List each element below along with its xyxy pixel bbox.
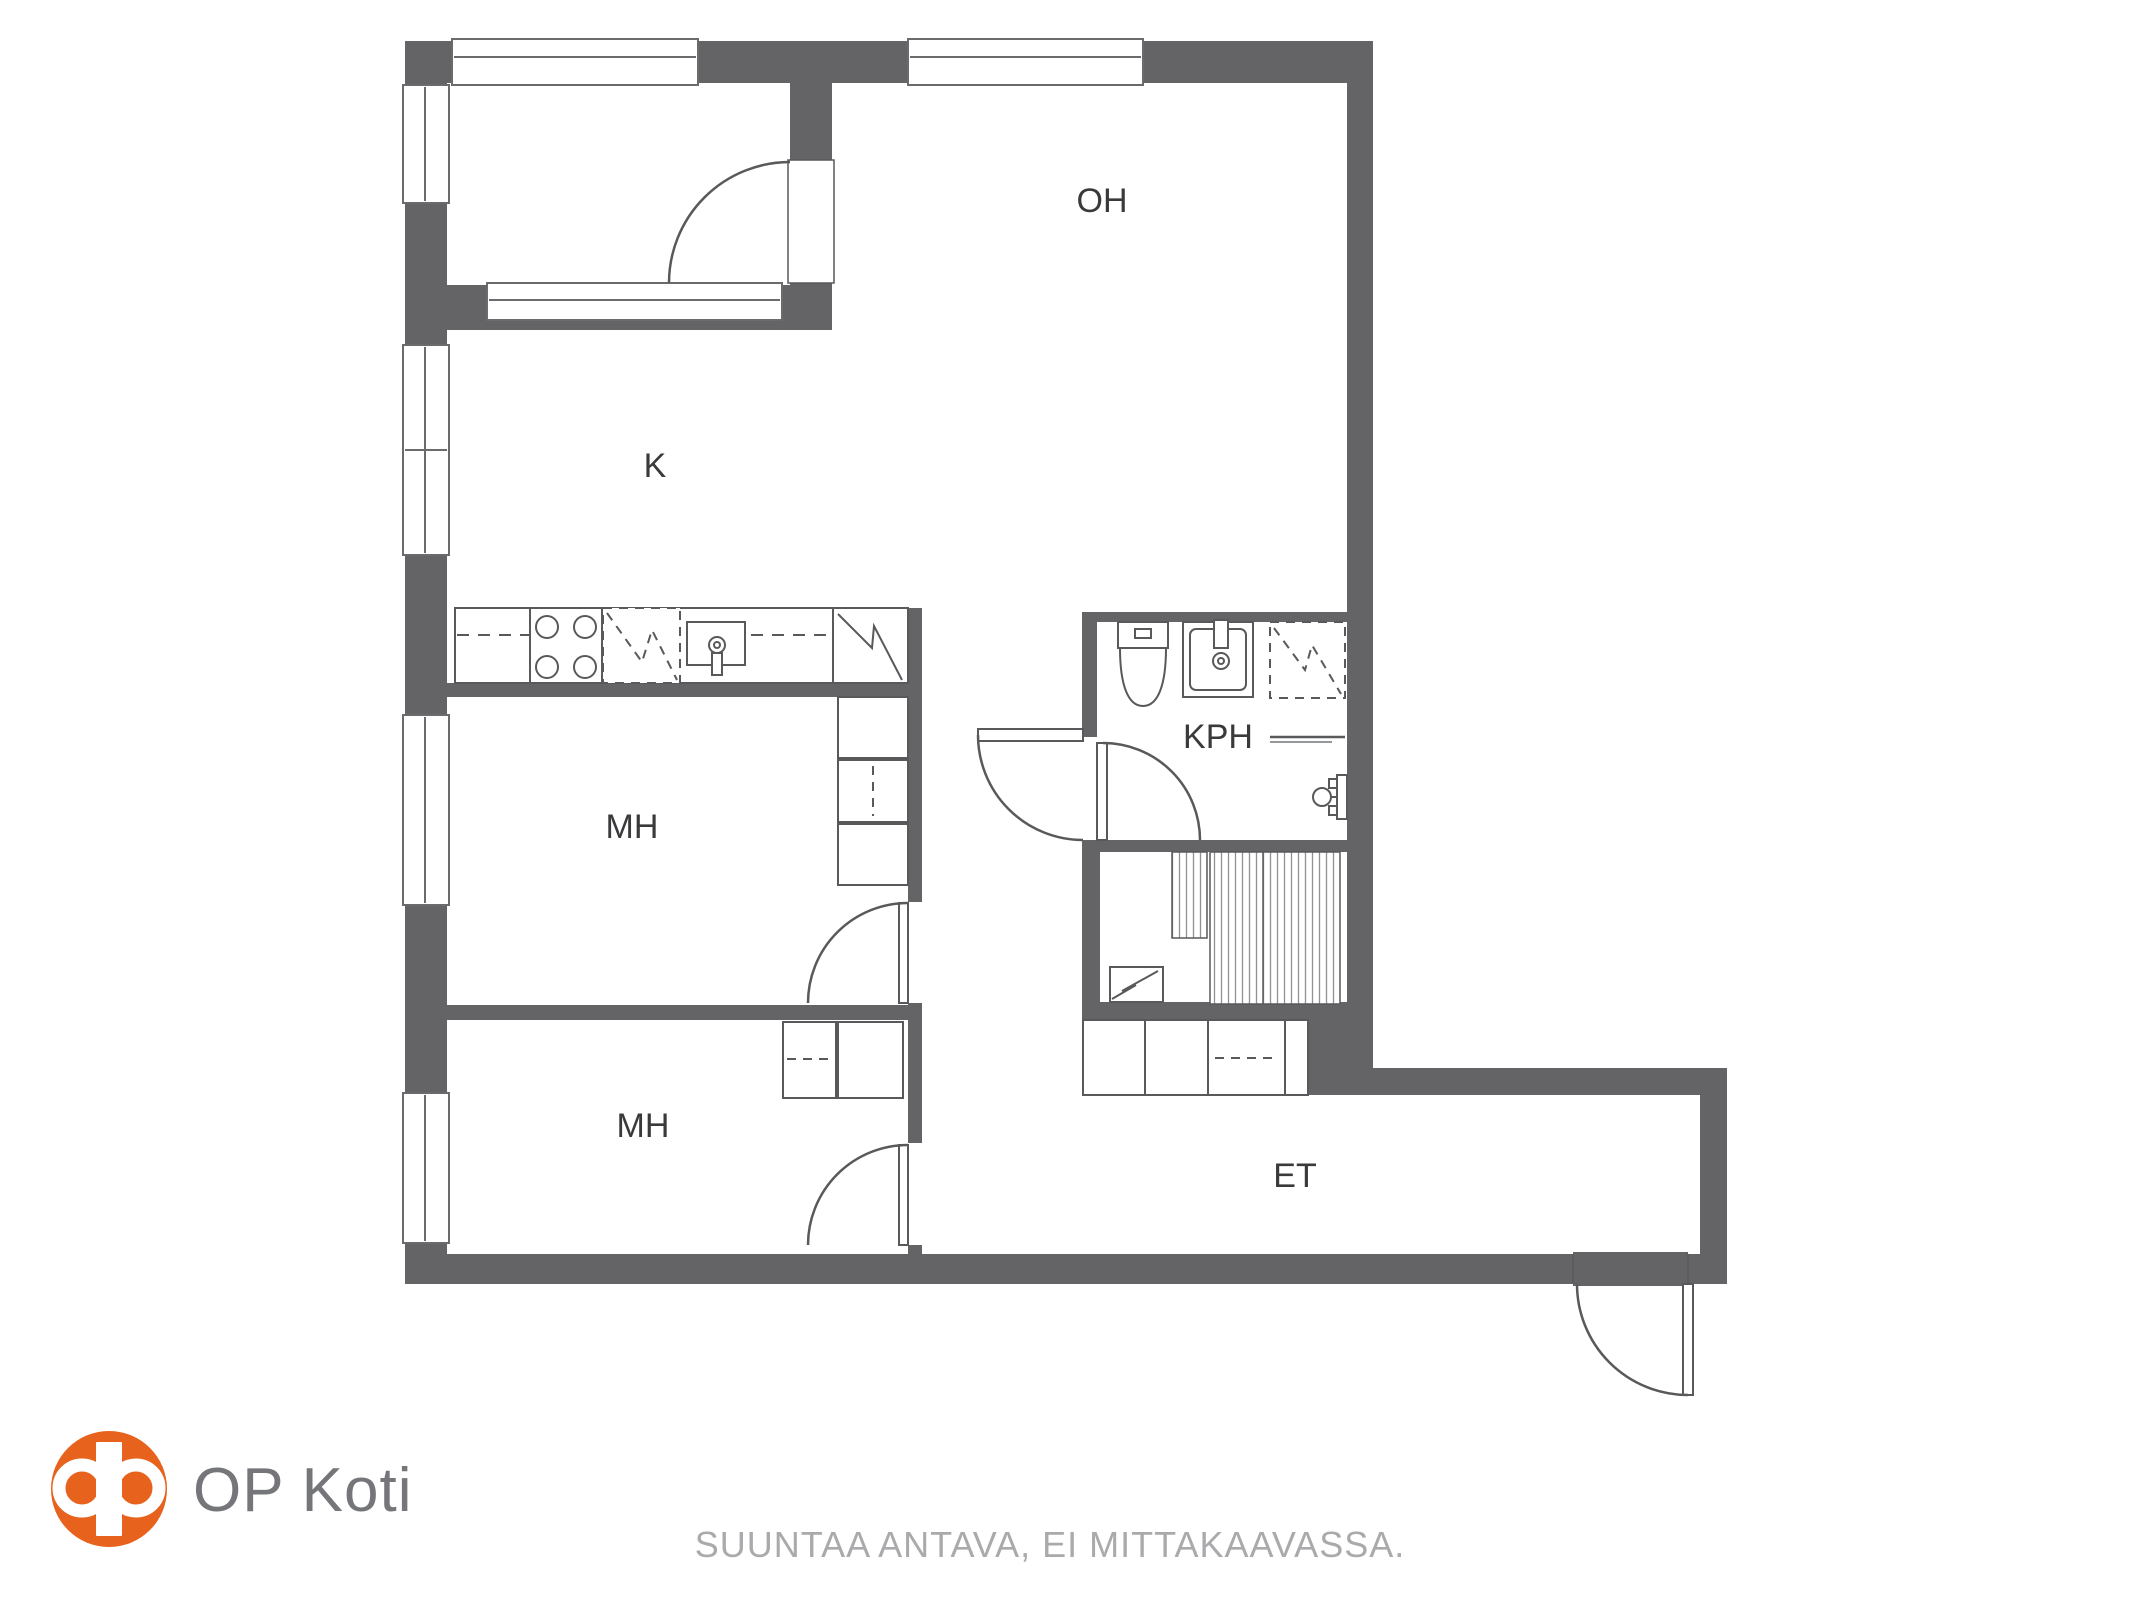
sliding-wardrobe-icon [1210,852,1340,1004]
door [808,1145,908,1245]
wardrobe [783,1022,836,1098]
door-swing-icon [1103,743,1200,840]
toilet-icon [1118,622,1168,706]
wardrobe [1083,1020,1145,1095]
wardrobe [838,824,908,885]
window-icon [403,85,449,203]
wall-mh-mh [447,1005,922,1020]
floor-plan: OH K MH MH KPH ET OP Koti SUUNTAA ANTAVA… [0,0,2133,1600]
wall-right-upper [1347,41,1373,1095]
towel-rail-icon [1270,737,1345,742]
wardrobe [1208,1020,1285,1095]
door [808,903,908,1003]
wardrobe [1145,1020,1208,1095]
room-label-mh1: MH [606,808,659,846]
utility-fixtures [1110,852,1340,1004]
footer: OP Koti SUUNTAA ANTAVA, EI MITTAKAAVASSA… [51,1431,1405,1565]
door-swing-icon [669,162,790,283]
wardrobe [838,760,908,822]
window-icon [403,345,449,555]
window-icon [403,715,449,905]
wall-bottom [405,1254,1727,1284]
op-logo-icon [51,1431,167,1547]
window-icon [452,39,698,85]
wardrobe [1285,1020,1308,1095]
wall-storage-top [1082,840,1347,852]
room-label-kph: KPH [1183,718,1253,756]
wall-kph-left [1082,622,1097,737]
water-heater-icon [1110,967,1163,1002]
wall-k-mh [447,683,922,697]
floor-plan-page: OH K MH MH KPH ET OP Koti SUUNTAA ANTAVA… [0,0,2133,1600]
kitchen-fixtures [455,608,908,683]
wall-corridor-1 [908,608,922,902]
washbasin-icon [1183,620,1253,697]
door [669,160,834,283]
shower-mixer-icon [1313,775,1347,819]
wall-block [1308,1020,1373,1095]
wall-storage-left [1082,852,1100,1002]
shower-icon [1270,622,1345,698]
stove-icon [530,608,602,683]
room-label-k: K [644,447,667,485]
wardrobe [838,1022,903,1098]
wall-corridor-2 [908,1003,922,1143]
door [978,729,1083,840]
refrigerator-icon [833,608,908,683]
window-icon [487,283,782,320]
disclaimer-text: SUUNTAA ANTAVA, EI MITTAKAAVASSA. [695,1524,1405,1565]
door-swing-icon [808,1145,908,1245]
dishwasher-icon [603,608,680,683]
door [1097,743,1200,840]
door-swing-icon [978,735,1083,840]
room-label-oh: OH [1077,182,1128,220]
room-label-et: ET [1273,1157,1316,1195]
sliding-wardrobe-icon [1172,852,1207,938]
wardrobe [838,697,908,758]
window-icon [403,1093,449,1243]
room-label-mh2: MH [617,1107,670,1145]
wall-corridor-3 [908,1245,922,1254]
doors [669,160,1693,1395]
window-icon [908,39,1143,85]
entrance-opening [1573,1252,1688,1286]
wall-et-right [1700,1095,1727,1284]
wall-et-top [1373,1068,1727,1095]
door-swing-icon [1577,1284,1688,1395]
brand-text: OP Koti [193,1456,413,1525]
door-swing-icon [808,903,908,1003]
